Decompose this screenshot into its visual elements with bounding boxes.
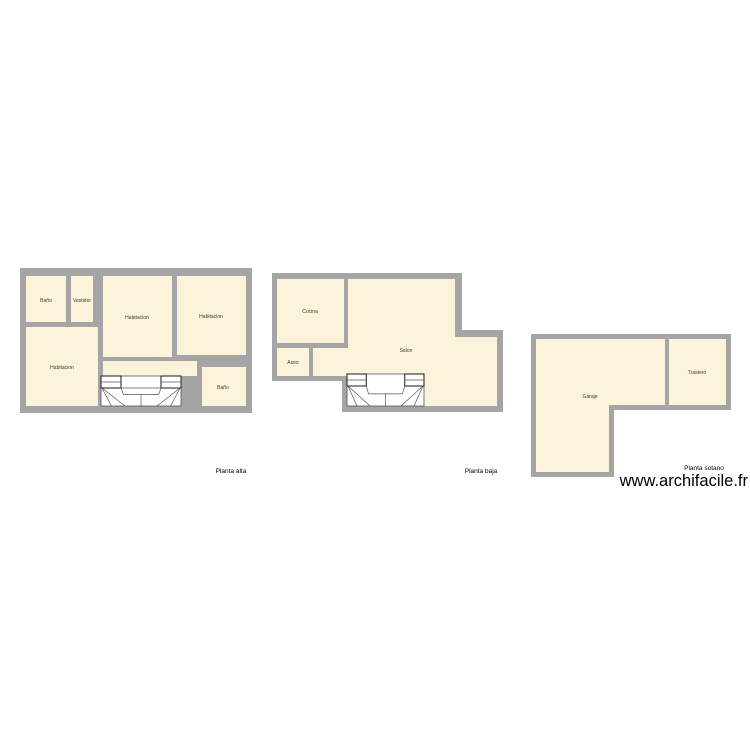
room-label-vestidor: Vestidor: [73, 298, 91, 304]
archifacile-watermark: www.archifacile.fr: [619, 472, 749, 490]
staircase: [347, 374, 424, 406]
room-label-garaje: Garaje: [582, 394, 597, 400]
room-label-salon: Salon: [400, 348, 413, 354]
room-label-habitacion-2: Habitacion: [199, 314, 223, 320]
room-label-bano-2: Baño: [217, 385, 229, 391]
floorplan-page: BañoVestidorHabitacionHabitacionHabitaci…: [0, 0, 750, 750]
plan-planta-baja: CocinaAseoSalonPlanta baja: [272, 273, 503, 475]
room-label-habitacion-3: Habitacion: [50, 365, 74, 371]
plan-planta-alta: BañoVestidorHabitacionHabitacionHabitaci…: [20, 268, 252, 475]
plan-title-planta-alta: Planta alta: [216, 468, 247, 475]
staircase: [101, 376, 181, 406]
room-label-trastero: Trastero: [688, 370, 707, 376]
room-label-habitacion-1: Habitacion: [125, 315, 149, 321]
room-label-cocina: Cocina: [302, 309, 318, 315]
plan-planta-sotano: GarajeTrasteroPlanta sotano: [531, 334, 731, 477]
room-pasillo: [103, 361, 197, 376]
floorplan-canvas: BañoVestidorHabitacionHabitacionHabitaci…: [0, 0, 750, 750]
room-label-aseo: Aseo: [287, 360, 299, 366]
room-label-bano-1: Baño: [40, 298, 52, 304]
plan-title-planta-baja: Planta baja: [465, 468, 498, 475]
